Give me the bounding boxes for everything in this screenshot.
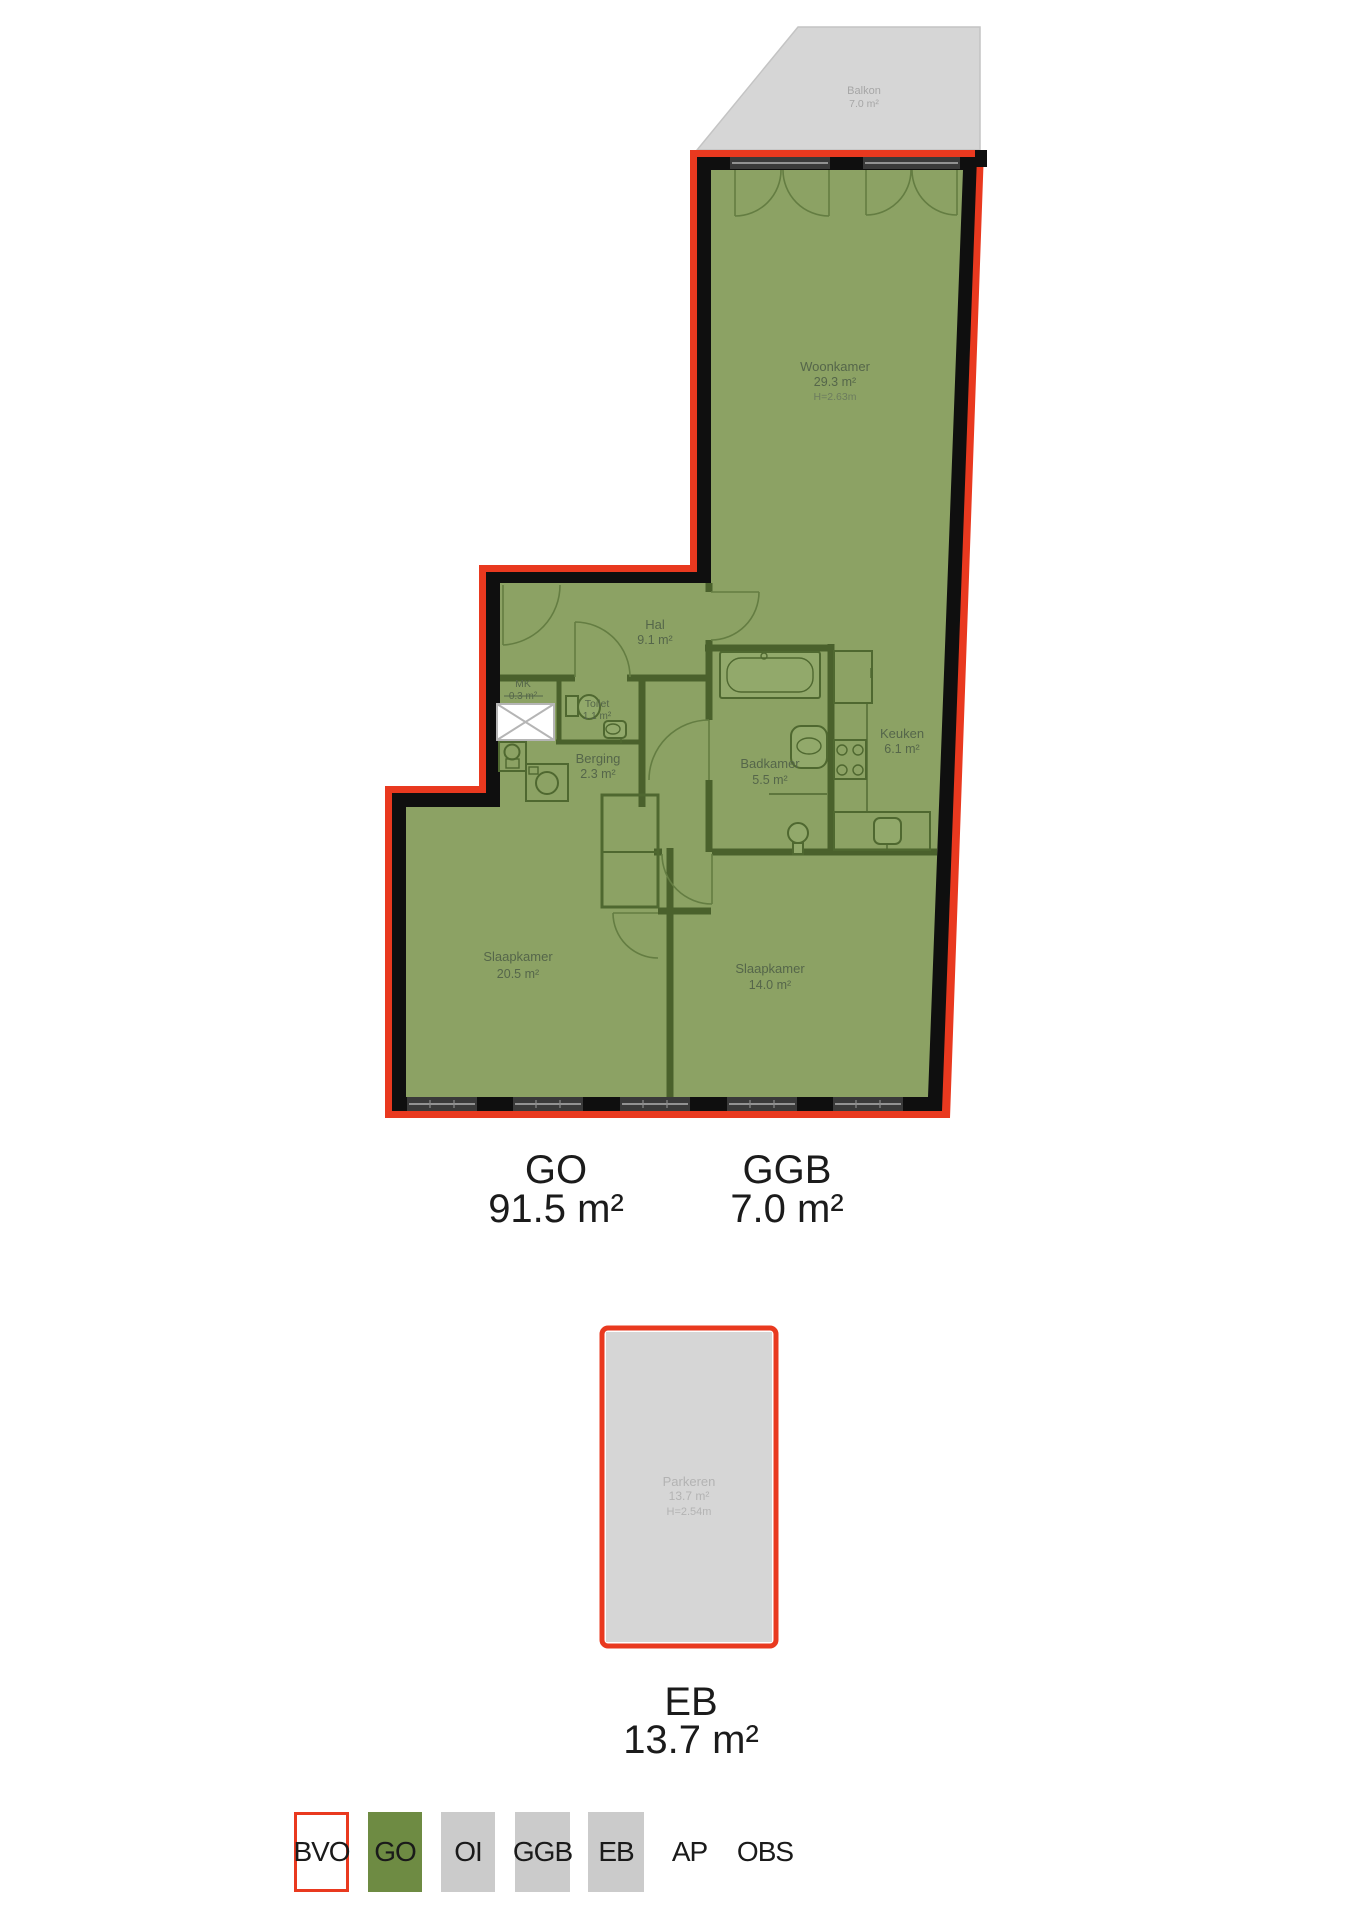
room-label-badkamer: Badkamer — [740, 756, 800, 771]
legend-item-obs: OBS — [733, 1812, 797, 1892]
room-area-woonkamer: 29.3 m² — [814, 375, 856, 389]
legend-item-oi: OI — [441, 1812, 495, 1892]
legend-item-ggb: GGB — [515, 1812, 570, 1892]
parking-name: Parkeren — [663, 1474, 716, 1489]
legend-item-bvo: BVO — [294, 1812, 349, 1892]
room-label-woonkamer: Woonkamer — [800, 359, 871, 374]
balcony: Balkon 7.0 m² — [697, 27, 980, 150]
toilet-tank-badkamer — [793, 843, 803, 854]
legend-label-go: GO — [374, 1836, 416, 1868]
room-label-berging: Berging — [576, 751, 621, 766]
parking: Parkeren 13.7 m² H=2.54m EB 13.7 m² — [602, 1328, 776, 1762]
go-code-label: GO — [525, 1148, 587, 1192]
floorplan-page: Balkon 7.0 m² — [0, 0, 1358, 1920]
room-area-berging: 2.3 m² — [580, 767, 615, 781]
parking-height: H=2.54m — [667, 1506, 712, 1518]
toilet-bowl-badkamer — [788, 823, 808, 843]
room-label-slaapkamer-klein: Slaapkamer — [735, 961, 805, 976]
room-area-keuken: 6.1 m² — [884, 742, 919, 756]
room-label-slaapkamer-groot: Slaapkamer — [483, 949, 553, 964]
legend-item-ap: AP — [662, 1812, 717, 1892]
eb-value-label: 13.7 m² — [623, 1718, 759, 1762]
legend-label-oi: OI — [454, 1836, 482, 1868]
room-area-slaapkamer-groot: 20.5 m² — [497, 967, 539, 981]
go-value-label: 91.5 m² — [488, 1187, 624, 1231]
ggb-code-label: GGB — [743, 1148, 832, 1192]
legend-label-ggb: GGB — [513, 1836, 572, 1868]
legend-item-eb: EB — [588, 1812, 644, 1892]
room-label-hal: Hal — [645, 617, 665, 632]
parking-area: 13.7 m² — [669, 1489, 710, 1503]
legend-label-eb: EB — [598, 1836, 633, 1868]
apartment-outline — [385, 150, 987, 1118]
legend-item-go: GO — [368, 1812, 422, 1892]
room-area-toilet: 1.1 m² — [583, 711, 612, 722]
room-area-badkamer: 5.5 m² — [752, 773, 787, 787]
room-area-hal: 9.1 m² — [637, 633, 672, 647]
toilet-tank — [566, 696, 578, 716]
room-label-keuken: Keuken — [880, 726, 924, 741]
legend: BVO GO OI GGB EB AP OBS — [0, 1812, 1358, 1892]
summary-labels: GO 91.5 m² GGB 7.0 m² — [488, 1148, 843, 1231]
room-height-woonkamer: H=2.63m — [814, 391, 857, 403]
room-area-slaapkamer-klein: 14.0 m² — [749, 978, 791, 992]
room-label-mk: MK — [515, 678, 531, 690]
balcony-floor — [697, 27, 980, 150]
kitchen-sink — [874, 818, 901, 844]
legend-label-bvo: BVO — [293, 1836, 349, 1868]
legend-label-obs: OBS — [737, 1836, 793, 1868]
balcony-area: 7.0 m² — [849, 98, 879, 110]
balcony-name: Balkon — [847, 85, 881, 97]
legend-label-ap: AP — [672, 1836, 707, 1868]
room-label-toilet: Toilet — [585, 698, 610, 710]
floorplan-drawing: Balkon 7.0 m² — [0, 0, 1358, 1920]
corner-wall-block — [975, 150, 987, 167]
ggb-value-label: 7.0 m² — [730, 1187, 843, 1231]
